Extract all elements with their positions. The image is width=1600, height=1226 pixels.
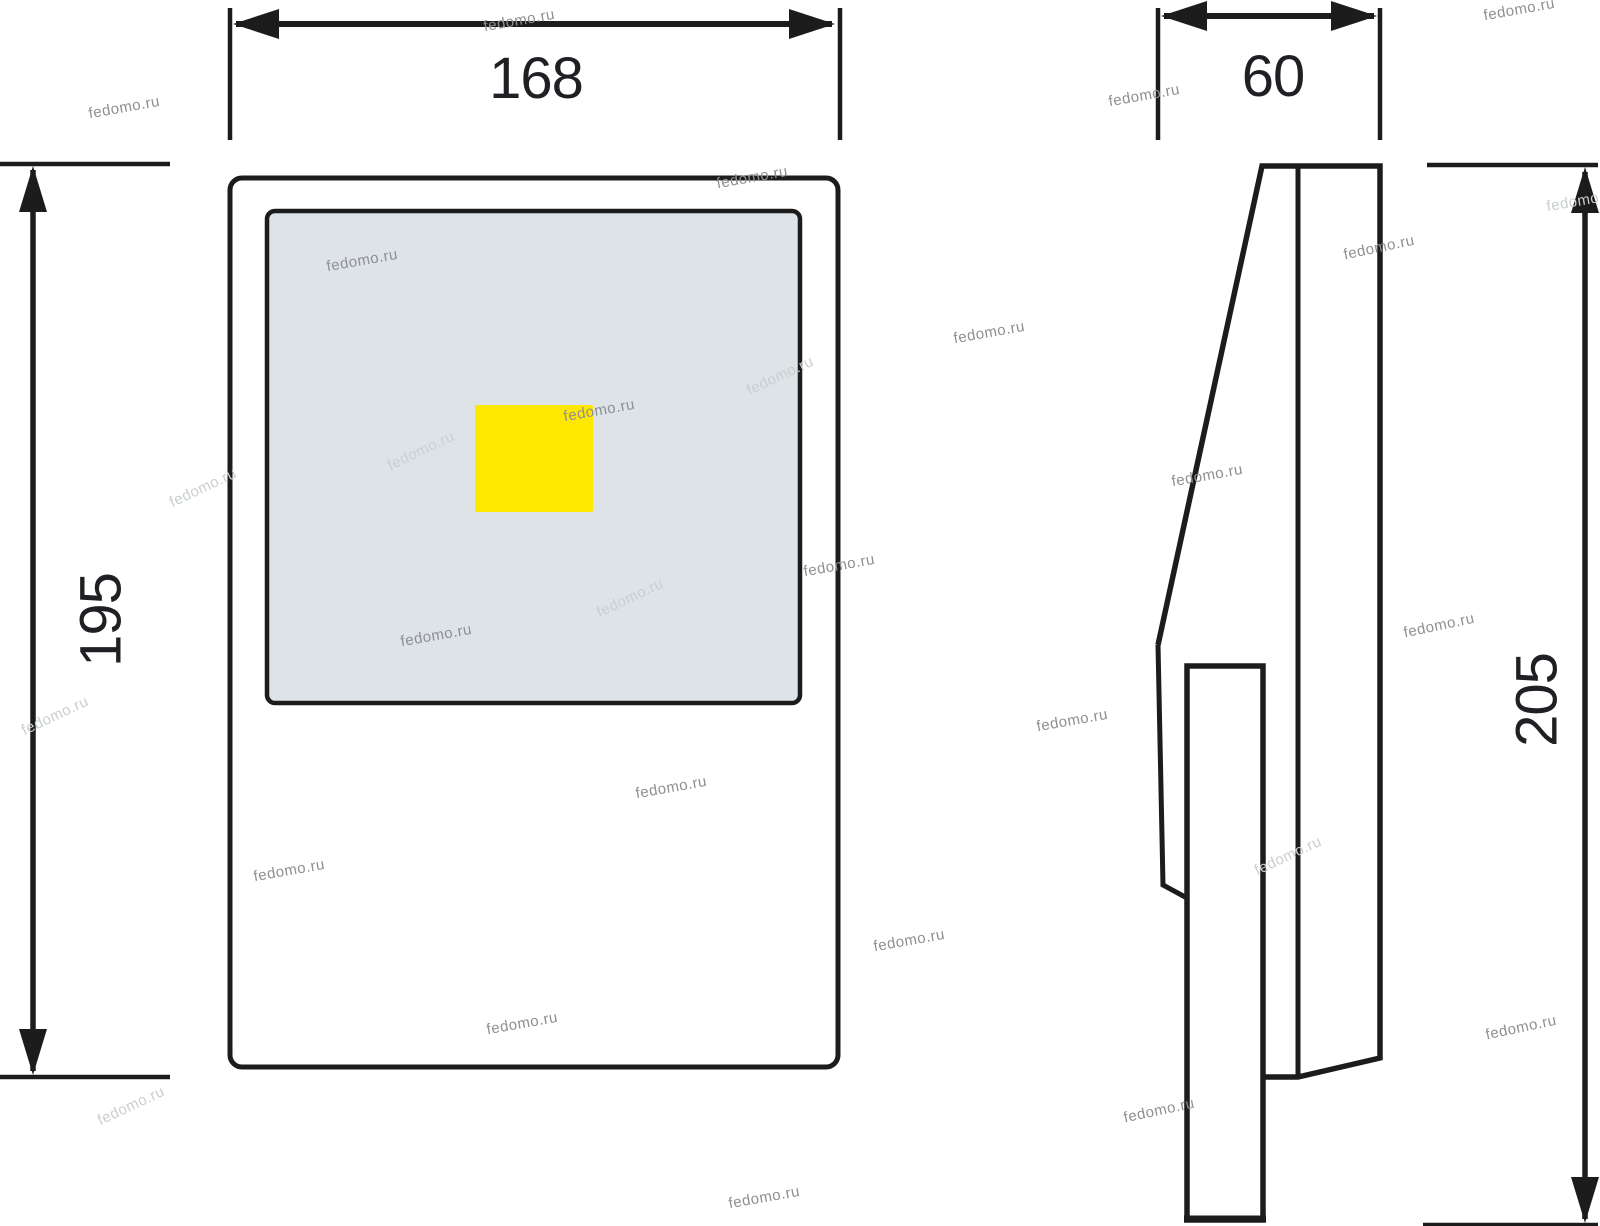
arrowhead-left-icon xyxy=(233,9,279,39)
dimension-drawing-canvas: 168 60 195 205 xyxy=(0,0,1600,1226)
depth-dimension: 60 xyxy=(1158,1,1380,140)
dimension-drawing-page: 168 60 195 205 xyxy=(0,0,1600,1226)
watermark-text: fedomo.ru xyxy=(87,93,161,122)
watermark-text: fedomo.ru xyxy=(952,318,1026,347)
arrowhead-right-icon xyxy=(1331,1,1377,31)
front-height-value: 195 xyxy=(69,573,134,667)
watermark-text: fedomo.ru xyxy=(482,6,556,35)
side-view xyxy=(1158,166,1380,1220)
front-width-value: 168 xyxy=(489,46,583,111)
front-view xyxy=(230,178,838,1067)
watermark-text: fedomo.ru xyxy=(1035,706,1109,735)
arrowhead-down-icon xyxy=(1571,1177,1599,1223)
watermark-text: fedomo.ru xyxy=(1484,1012,1558,1044)
arrowhead-left-icon xyxy=(1161,1,1207,31)
watermark-text: fedomo.ru xyxy=(872,926,946,955)
watermark-text: fedomo.ru xyxy=(727,1183,801,1212)
side-view-lower-front-edge xyxy=(1158,645,1187,898)
arrowhead-down-icon xyxy=(19,1029,47,1075)
depth-value: 60 xyxy=(1242,44,1305,109)
overall-height-value: 205 xyxy=(1505,653,1570,747)
front-width-dimension: 168 xyxy=(230,8,840,140)
watermark-text: fedomo.ru xyxy=(95,1083,167,1129)
watermark-text: fedomo.ru xyxy=(1170,461,1244,490)
watermark-text: fedomo.ru xyxy=(19,693,91,739)
watermark-text: fedomo.ru xyxy=(1402,610,1476,642)
overall-height-dimension: 205 xyxy=(1423,165,1599,1225)
arrowhead-up-icon xyxy=(19,166,47,212)
watermark-text: fedomo.ru xyxy=(1482,0,1556,24)
watermark-text: fedomo.ru xyxy=(1107,81,1181,110)
front-height-dimension: 195 xyxy=(0,164,170,1077)
arrowhead-right-icon xyxy=(789,9,835,39)
side-view-mounting-bracket xyxy=(1187,666,1263,1220)
